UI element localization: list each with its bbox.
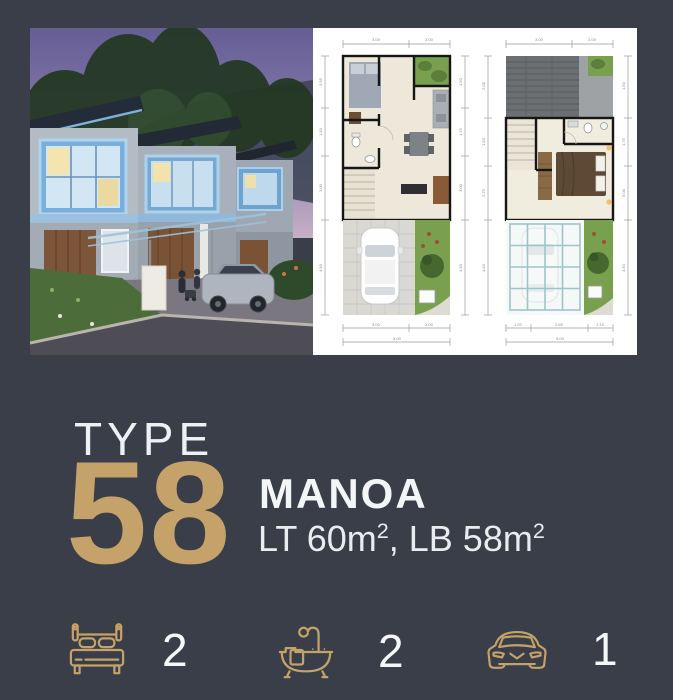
svg-text:5.00: 5.00 <box>393 336 402 341</box>
floorplans-drawing: 3.00 2.00 1.95 1.50 3.00 4.50 <box>313 28 637 355</box>
svg-text:2.65: 2.65 <box>555 322 564 327</box>
feature-bedrooms: 2 <box>68 622 188 678</box>
svg-text:3.00: 3.00 <box>535 37 544 42</box>
bath-icon <box>276 622 336 680</box>
svg-text:4.50: 4.50 <box>458 263 463 272</box>
house-photo-illustration <box>30 28 313 355</box>
svg-text:1.20: 1.20 <box>514 322 523 327</box>
svg-text:1.75: 1.75 <box>458 127 463 136</box>
svg-text:5.00: 5.00 <box>556 336 565 341</box>
bedroom-count: 2 <box>162 623 188 677</box>
area-separator: , <box>389 518 409 559</box>
svg-text:3.00: 3.00 <box>318 183 323 192</box>
svg-text:2.00: 2.00 <box>425 37 434 42</box>
tv-console <box>401 184 427 194</box>
svg-text:2.00: 2.00 <box>425 322 434 327</box>
house-photo <box>30 28 313 355</box>
svg-text:1.15: 1.15 <box>596 322 605 327</box>
svg-text:4.50: 4.50 <box>481 263 486 272</box>
svg-text:3.00: 3.00 <box>372 322 381 327</box>
lt-sup: 2 <box>377 518 389 543</box>
svg-text:3.00: 3.00 <box>372 37 381 42</box>
svg-text:1.95: 1.95 <box>318 77 323 86</box>
feature-bathrooms: 2 <box>276 622 404 680</box>
lb-sup: 2 <box>533 518 545 543</box>
svg-text:1.50: 1.50 <box>621 81 626 90</box>
lb-area: LB 58m <box>409 518 533 559</box>
type-number: 58 <box>66 446 232 580</box>
floorplans-panel: 3.00 2.00 1.95 1.50 3.00 4.50 <box>313 28 637 355</box>
svg-text:3.00: 3.00 <box>458 183 463 192</box>
svg-text:4.50: 4.50 <box>318 263 323 272</box>
lt-area: LT 60m <box>258 518 377 559</box>
house-name: MANOA <box>259 470 428 518</box>
svg-text:1.50: 1.50 <box>481 137 486 146</box>
property-card: 3.00 2.00 1.95 1.50 3.00 4.50 <box>0 0 673 700</box>
svg-text:1.50: 1.50 <box>318 127 323 136</box>
floorplan-first-floor: 3.00 2.00 1.95 1.50 3.00 4.50 <box>318 37 469 346</box>
entry-pillar <box>142 266 166 310</box>
car-icon <box>486 623 548 675</box>
carport-count: 1 <box>592 622 618 676</box>
svg-text:3.00: 3.00 <box>621 188 626 197</box>
bathroom-count: 2 <box>378 624 404 678</box>
dining-table <box>409 132 429 156</box>
floorplan-second-floor: 3.00 2.00 2.05 1.50 2.70 4.50 <box>481 37 632 346</box>
bed-icon <box>68 622 126 678</box>
svg-text:4.50: 4.50 <box>621 263 626 272</box>
car-top-view <box>357 228 403 304</box>
area-line: LT 60m2, LB 58m2 <box>258 518 545 560</box>
carport-skylight <box>506 220 584 315</box>
feature-carport: 1 <box>486 622 618 676</box>
svg-text:1.50: 1.50 <box>458 77 463 86</box>
svg-text:2.70: 2.70 <box>481 188 486 197</box>
hero-collage: 3.00 2.00 1.95 1.50 3.00 4.50 <box>30 28 637 355</box>
svg-text:2.05: 2.05 <box>481 81 486 90</box>
svg-text:1.75: 1.75 <box>621 137 626 146</box>
svg-text:2.00: 2.00 <box>588 37 597 42</box>
